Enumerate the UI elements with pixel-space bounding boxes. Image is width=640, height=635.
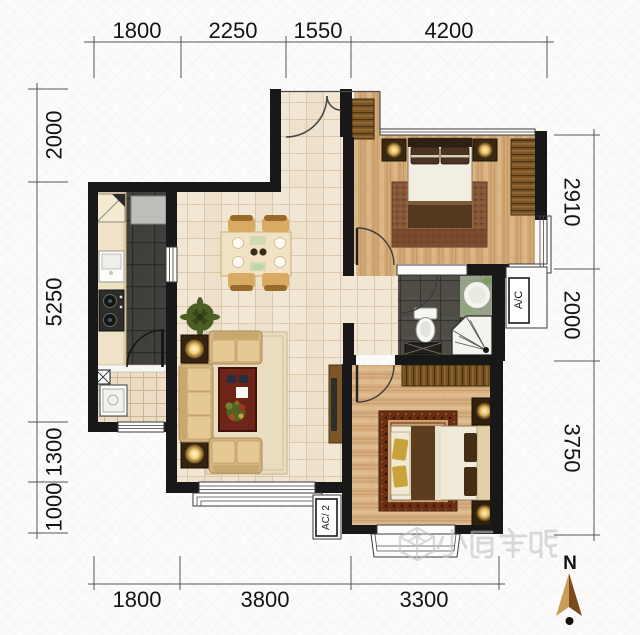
svg-text:2000: 2000 bbox=[560, 291, 585, 340]
svg-text:1300: 1300 bbox=[42, 428, 67, 477]
svg-text:A/C: A/C bbox=[513, 291, 525, 309]
svg-text:2910: 2910 bbox=[560, 178, 585, 227]
svg-text:2000: 2000 bbox=[42, 111, 67, 160]
svg-text:1800: 1800 bbox=[113, 587, 162, 612]
svg-text:3300: 3300 bbox=[400, 587, 449, 612]
svg-text:2250: 2250 bbox=[209, 18, 258, 43]
svg-text:4200: 4200 bbox=[425, 18, 474, 43]
svg-text:1000: 1000 bbox=[42, 483, 67, 532]
svg-text:1550: 1550 bbox=[294, 18, 343, 43]
svg-text:3750: 3750 bbox=[560, 424, 585, 473]
svg-text:3800: 3800 bbox=[241, 587, 290, 612]
svg-text:5250: 5250 bbox=[42, 278, 67, 327]
svg-text:N: N bbox=[563, 553, 577, 574]
svg-text:1800: 1800 bbox=[113, 18, 162, 43]
svg-text:AC/ 2: AC/ 2 bbox=[321, 505, 332, 530]
